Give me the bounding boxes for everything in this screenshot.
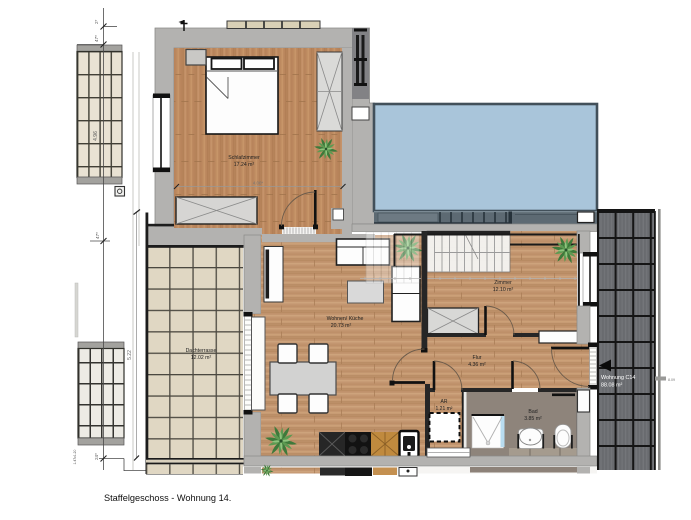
- svg-text:4.96: 4.96: [93, 131, 99, 141]
- svg-text:Zimmer: Zimmer: [494, 280, 512, 286]
- svg-text:20.73 m²: 20.73 m²: [331, 323, 352, 329]
- svg-text:AR: AR: [441, 399, 448, 405]
- svg-text:1.21 m²: 1.21 m²: [436, 406, 453, 412]
- svg-text:Staffelgeschoss - Wohnung 14.: Staffelgeschoss - Wohnung 14.: [104, 493, 231, 503]
- svg-text:3.85 m²: 3.85 m²: [524, 416, 542, 422]
- svg-text:Schlafzimmer: Schlafzimmer: [228, 155, 260, 161]
- svg-text:8.09: 8.09: [668, 378, 675, 382]
- svg-text:Flur: Flur: [473, 355, 482, 361]
- svg-text:17.24 m²: 17.24 m²: [234, 162, 255, 168]
- svg-text:4.36 m²: 4.36 m²: [468, 362, 486, 368]
- svg-text:Dachterrasse: Dachterrasse: [186, 348, 217, 354]
- svg-text:5.22: 5.22: [127, 350, 133, 360]
- svg-text:Bad: Bad: [528, 409, 537, 415]
- svg-text:88.08 m²: 88.08 m²: [601, 383, 622, 389]
- svg-text:2*: 2*: [94, 19, 99, 24]
- svg-text:12.02 m²: 12.02 m²: [191, 355, 212, 361]
- svg-text:12.10 m²: 12.10 m²: [493, 287, 514, 293]
- svg-text:1.47x1.20: 1.47x1.20: [73, 449, 77, 464]
- svg-text:47*: 47*: [94, 35, 99, 42]
- svg-text:Wohnung C14: Wohnung C14: [601, 375, 635, 381]
- svg-text:24*: 24*: [94, 453, 99, 460]
- svg-text:4.06*: 4.06*: [253, 181, 264, 186]
- svg-text:Wohnen/ Küche: Wohnen/ Küche: [327, 316, 364, 322]
- svg-text:47*: 47*: [95, 232, 100, 239]
